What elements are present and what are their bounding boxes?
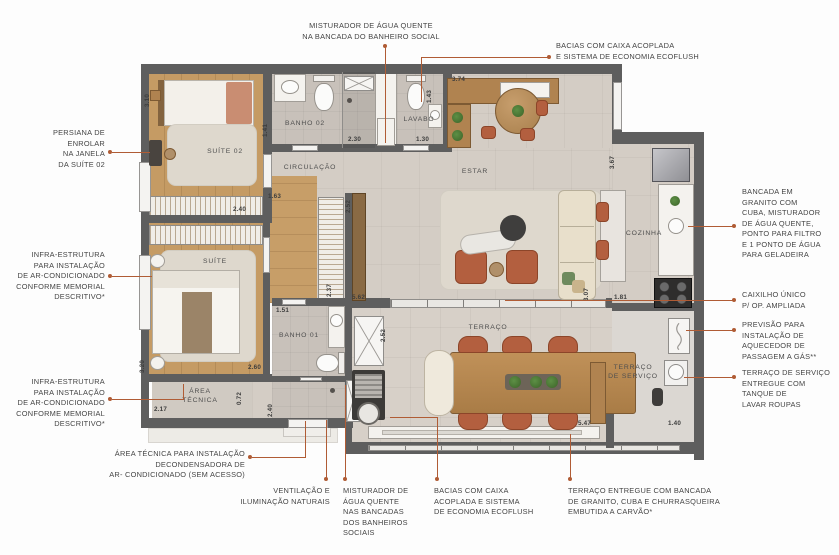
banho01-window: [288, 419, 328, 428]
leader-dot: [732, 298, 736, 302]
leader-dot: [108, 274, 112, 278]
fridge: [652, 148, 690, 182]
annotation-persiana: PERSIANA DE ENROLAR NA JANELA DA SUÍTE 0…: [25, 128, 105, 170]
banho01-door: [282, 299, 306, 305]
leader-dot: [383, 44, 387, 48]
leader-dot: [568, 477, 572, 481]
armchair: [506, 250, 538, 284]
estar-window: [613, 82, 622, 130]
dining-chair: [520, 128, 535, 141]
suite-bed-runner: [182, 292, 212, 353]
terraco-chair: [548, 336, 578, 353]
suite02-stool: [164, 148, 176, 160]
leader-bacias-top-v: [421, 57, 422, 102]
terraco-chair: [548, 413, 578, 430]
dim-2-52a: 2.52: [345, 200, 352, 213]
wall-top: [141, 64, 622, 74]
leader-persiana: [112, 152, 150, 153]
dining-chair: [481, 126, 496, 139]
plant-icon: [452, 130, 463, 141]
leader-dot: [732, 224, 736, 228]
annotation-bacias-bottom: BACIAS COM CAIXA ACOPLADA E SISTEMA DE E…: [434, 486, 544, 518]
dim-5-47: 5.47: [578, 420, 591, 427]
dim-3-20: 3.20: [139, 360, 146, 373]
room-label-suite: SUÍTE: [175, 258, 255, 267]
leader-area-tecnica-v: [305, 421, 306, 458]
terraco-chair: [458, 336, 488, 353]
leader-bacias-bottom: [437, 417, 438, 479]
annotation-infra-suite02: INFRA-ESTRUTURA PARA INSTALAÇÃO DE AR-CO…: [15, 250, 105, 303]
leader-misturador-bottom: [345, 385, 346, 479]
suite02-bed-blanket: [226, 82, 252, 124]
churrasqueira-cuba: [357, 402, 380, 425]
skylight-x-icon: [344, 76, 374, 91]
leader-dot: [343, 477, 347, 481]
estar-sideboard-leg: [447, 104, 471, 148]
annotation-misturador-bottom: MISTURADOR DE ÁGUA QUENTE NAS BANCADAS D…: [343, 486, 418, 539]
churrasqueira-grill-louvers: [355, 374, 382, 398]
terraco-head-bench: [424, 350, 454, 416]
terraco-chair: [502, 413, 532, 430]
banho01-counter: [328, 306, 345, 348]
side-table: [489, 262, 504, 277]
dim-2-40b: 2.40: [267, 404, 274, 417]
terraco-railing-glass: [368, 445, 680, 451]
leader-misturador-top: [385, 47, 386, 143]
annotation-terraco-entregue: TERRAÇO ENTREGUE COM BANCADA DE GRANITO,…: [568, 486, 728, 518]
coffee-table-round: [500, 215, 526, 241]
terraco-bancada-tray: [382, 430, 582, 435]
leader-dot: [108, 150, 112, 154]
dim-2-37: 2.37: [326, 284, 333, 297]
leader-dot: [248, 455, 252, 459]
sofa-cushion-line: [560, 262, 594, 263]
leader-infra2-v: [183, 384, 184, 400]
dim-3-67: 3.67: [609, 156, 616, 169]
leader-bacias-top: [421, 57, 549, 58]
room-label-suite02: SUÍTE 02: [180, 148, 270, 157]
dim-3-10: 3.10: [144, 94, 151, 107]
suite-wardrobe: [149, 225, 263, 245]
dining-chair: [536, 100, 548, 116]
leader-caixilho: [505, 300, 735, 301]
suite-nightstand-bottom: [150, 356, 165, 370]
leader-ventilacao: [326, 420, 327, 479]
dim-0-72: 0.72: [236, 392, 243, 405]
leader-aquecedor: [686, 330, 735, 331]
dim-1-30: 1.30: [416, 136, 429, 143]
dim-2-40a: 2.40: [233, 206, 246, 213]
armchair: [455, 250, 487, 284]
dim-5-62: 5.62: [352, 294, 365, 301]
gas-heater: [668, 318, 690, 354]
dim-1-63: 1.63: [268, 193, 281, 200]
shower-head-icon: [330, 388, 335, 393]
lavabo-door: [403, 145, 429, 151]
annotation-caixilho: CAIXILHO ÚNICO P/ OP. AMPLIADA: [742, 290, 834, 311]
plant-icon: [530, 376, 542, 388]
shower-head-icon: [347, 98, 352, 103]
leader-dot: [435, 477, 439, 481]
annotation-tanque: TERRAÇO DE SERVIÇO ENTREGUE COM TANQUE D…: [742, 368, 834, 410]
dim-2-17: 2.17: [154, 406, 167, 413]
suite02-window: [139, 162, 151, 212]
bar-stool: [596, 202, 609, 222]
dim-1-41: 1.41: [262, 124, 269, 137]
tv-console: [352, 193, 366, 301]
leader-tanque: [684, 377, 735, 378]
leader-bacias-bottom-h: [390, 417, 437, 418]
suite02-side-cabinet: [150, 90, 161, 101]
dim-2-60: 2.60: [248, 364, 261, 371]
sofa-cushion-line: [560, 226, 594, 227]
dim-3-74: 3.74: [452, 76, 465, 83]
bar-stool: [596, 240, 609, 260]
dim-2-30: 2.30: [348, 136, 361, 143]
wall-kitchen-top: [612, 132, 704, 144]
annotation-area-tecnica: ÁREA TÉCNICA PARA INSTALAÇÃO DECONDENSAD…: [100, 449, 245, 481]
floorplan-image: SUÍTE 02 BANHO 02 LAVABO CIRCULAÇÃO ESTA…: [0, 0, 839, 555]
dim-1-43: 1.43: [426, 90, 433, 103]
plant-icon: [452, 112, 463, 123]
dim-1-40: 1.40: [668, 420, 681, 427]
plant-icon: [546, 376, 558, 388]
cooktop: [654, 278, 692, 308]
wall-right: [694, 132, 704, 460]
annotation-bancada-granito: BANCADA EM GRANITO COM CUBA, MISTURADOR …: [742, 187, 834, 261]
leader-dot: [732, 328, 736, 332]
dim-2-52b: 2.52: [380, 329, 387, 342]
suite02-desk: [149, 140, 162, 166]
leader-dot: [732, 375, 736, 379]
room-label-banho02: BANHO 02: [272, 120, 338, 129]
room-label-banho01: BANHO 01: [266, 332, 332, 341]
banho02-toilet: [314, 83, 334, 111]
banho01-toilet: [316, 354, 339, 372]
annotation-ventilacao: VENTILAÇÃO E ILUMINAÇÃO NATURAIS: [230, 486, 330, 507]
plant-icon: [509, 376, 521, 388]
plant-icon: [670, 196, 680, 206]
leader-area-tecnica: [252, 457, 306, 458]
annotation-bacias-top: BACIAS COM CAIXA ACOPLADA E SISTEMA DE E…: [556, 41, 726, 62]
plant-icon: [512, 105, 524, 117]
leader-infra1: [112, 276, 152, 277]
banho01-basin: [330, 314, 343, 327]
wall-suites-divider: [147, 215, 263, 223]
leader-dot: [547, 55, 551, 59]
banho01-toilet-tank: [338, 352, 345, 374]
laundry-tank-basin: [668, 364, 684, 380]
room-label-lavabo: LAVABO: [396, 116, 442, 125]
terraco-chair: [458, 413, 488, 430]
banho01-shower-door: [300, 377, 322, 381]
banho02-door: [292, 145, 318, 151]
banho02-toilet-tank: [313, 75, 335, 82]
dim-1-51: 1.51: [276, 307, 289, 314]
leader-terraco-entregue: [570, 434, 571, 479]
lavabo-toilet-tank: [406, 75, 426, 82]
room-label-area-tecnica: ÁREA TÉCNICA: [160, 388, 240, 406]
annotation-infra-suite: INFRA-ESTRUTURA PARA INSTALAÇÃO DE AR-CO…: [15, 377, 105, 430]
leader-bancada: [688, 226, 735, 227]
room-label-cozinha: COZINHA: [614, 230, 674, 239]
leader-infra2: [112, 399, 184, 400]
room-label-circulacao: CIRCULAÇÃO: [255, 164, 365, 173]
suite-nightstand-top: [150, 254, 165, 268]
annotation-misturador-top: MISTURADOR DE ÁGUA QUENTE NA BANCADA DO …: [255, 21, 487, 42]
wall-suite-bottom: [141, 374, 272, 382]
suite-window: [139, 255, 151, 330]
suite-bed-pillows: [153, 271, 239, 288]
room-label-terraco: TERRAÇO: [448, 324, 528, 333]
leader-dot: [324, 477, 328, 481]
servico-dark-object: [652, 388, 663, 406]
leader-dot: [108, 397, 112, 401]
room-label-terraco-servico: TERRAÇO DE SERVIÇO: [600, 364, 666, 382]
terraco-chair: [502, 336, 532, 353]
banho02-basin: [281, 80, 299, 94]
room-label-estar: ESTAR: [440, 168, 510, 177]
annotation-aquecedor: PREVISÃO PARA INSTALAÇÃO DE AQUECEDOR DE…: [742, 320, 834, 362]
suite-door: [263, 237, 270, 273]
